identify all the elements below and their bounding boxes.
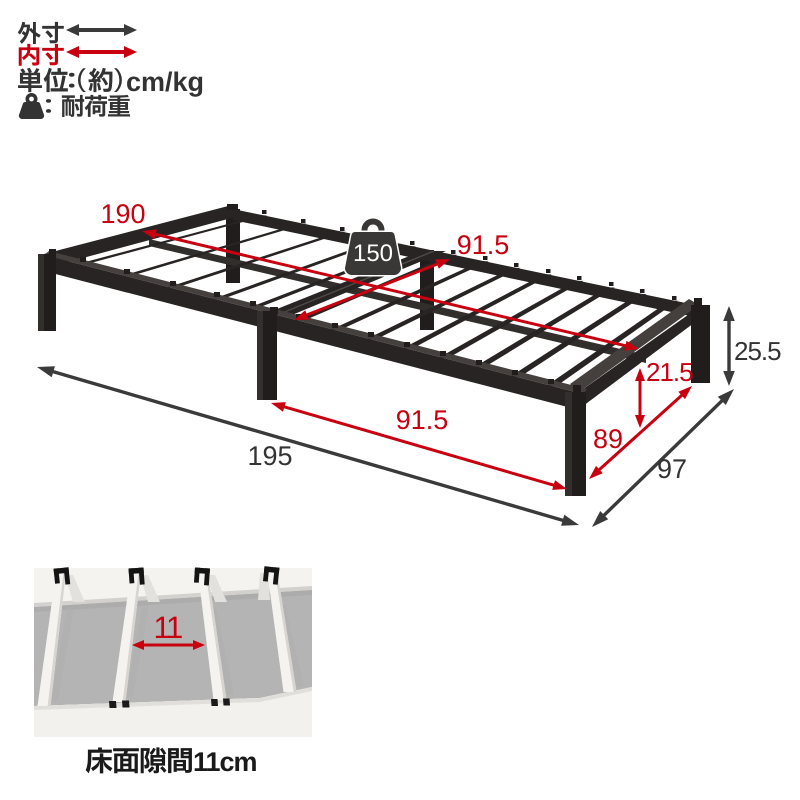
- svg-text:11cm: 11cm: [193, 747, 257, 777]
- svg-text:97: 97: [657, 454, 687, 484]
- svg-text:195: 195: [247, 441, 292, 471]
- svg-text:25.5: 25.5: [734, 336, 781, 366]
- svg-text:1: 1: [166, 610, 183, 645]
- svg-text:cm/kg: cm/kg: [126, 67, 204, 97]
- svg-text:190: 190: [100, 199, 145, 229]
- svg-text:91.5: 91.5: [396, 405, 449, 435]
- svg-text:21.5: 21.5: [646, 357, 693, 387]
- svg-text:89: 89: [593, 424, 623, 454]
- svg-text:91.5: 91.5: [457, 230, 510, 260]
- svg-text:150: 150: [353, 240, 393, 267]
